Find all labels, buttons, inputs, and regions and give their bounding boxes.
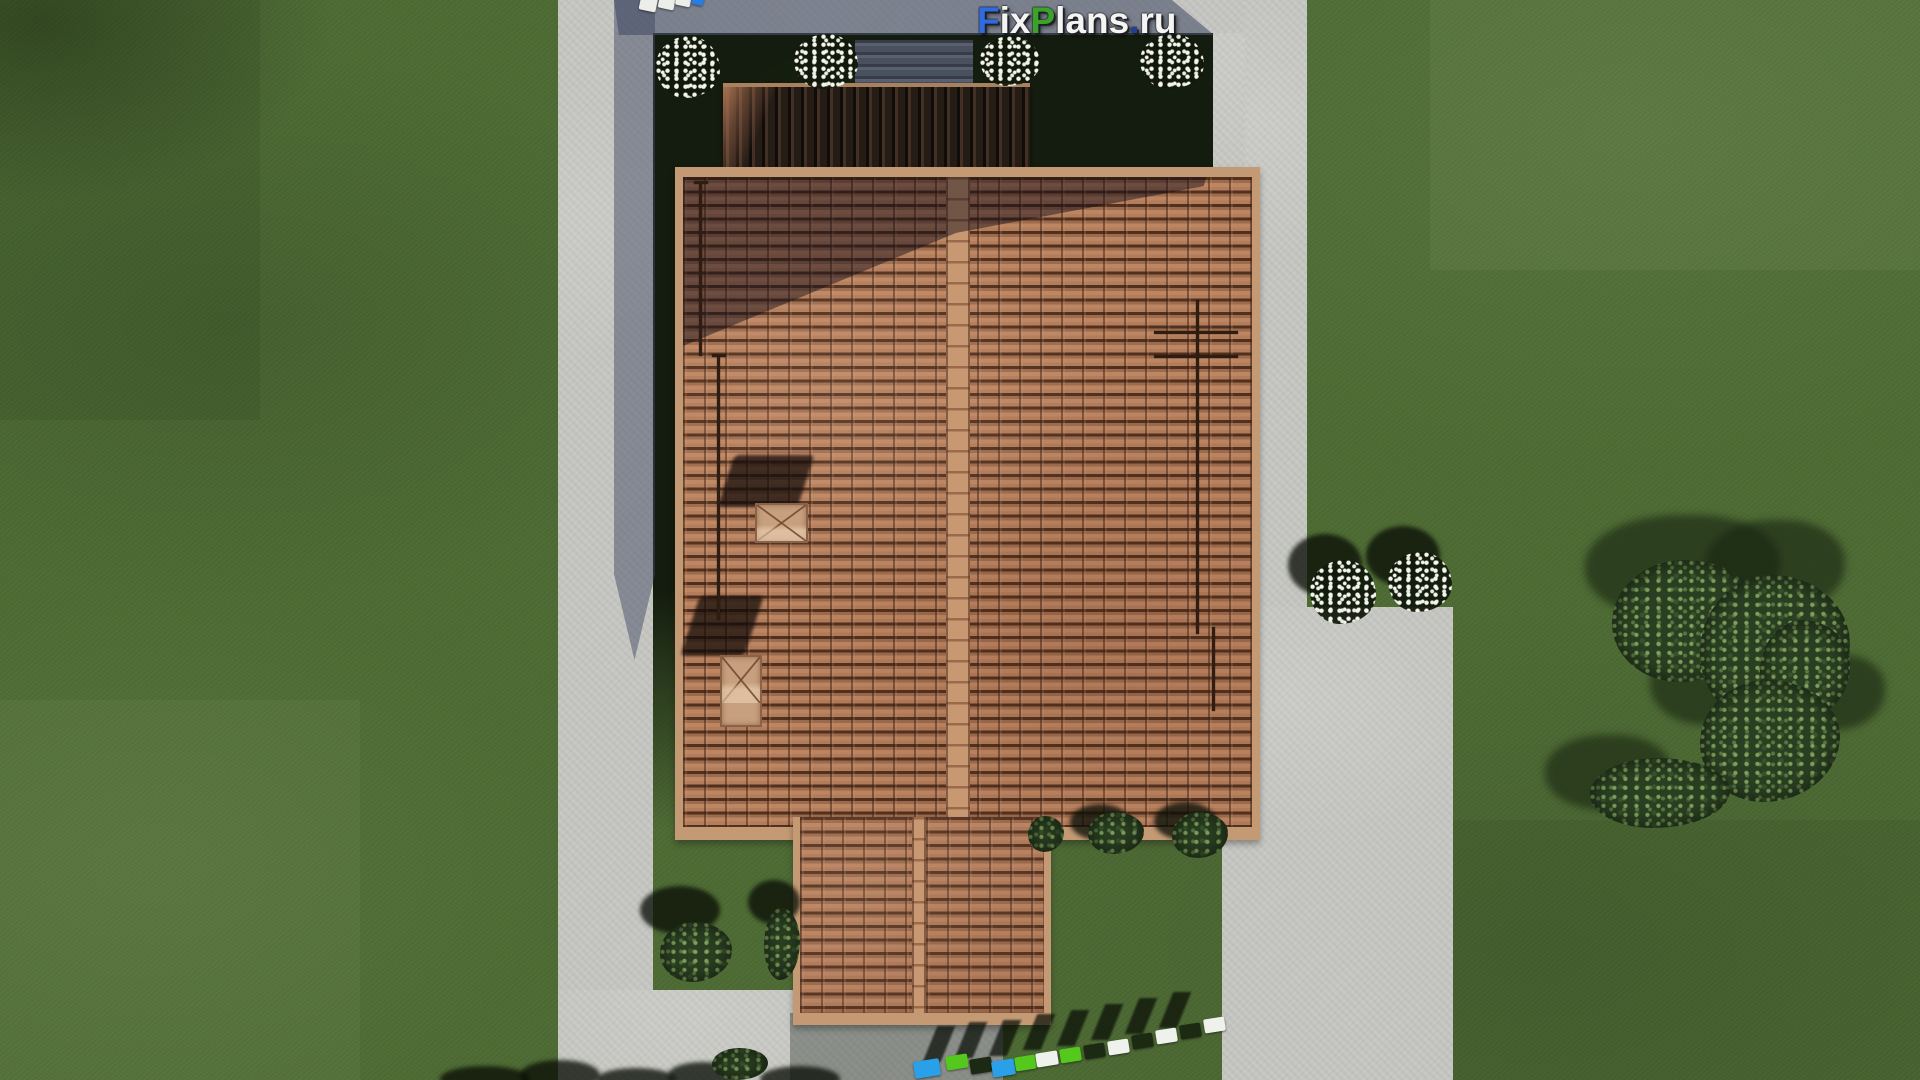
- watermark-segment: .: [1129, 0, 1139, 41]
- chimney: [755, 503, 808, 543]
- stone-shadow: [1159, 992, 1192, 1028]
- walkway-shadow: [614, 0, 655, 660]
- flower-shrub: [980, 36, 1040, 86]
- stone-shadow: [1057, 1010, 1090, 1046]
- green-shrub: [1172, 812, 1228, 858]
- tree-shadow: [440, 1066, 530, 1080]
- stepping-stone: [1083, 1042, 1106, 1059]
- stone-shadow: [1091, 1004, 1124, 1040]
- flower-shrub: [1388, 552, 1452, 612]
- snow-guard-rail: [1154, 331, 1238, 334]
- right-walkway-upper: [1213, 33, 1247, 169]
- stepping-stone: [1107, 1038, 1130, 1055]
- chimney: [720, 655, 762, 727]
- roof-rail: [1212, 627, 1215, 711]
- chimney-cap-seam: [722, 657, 760, 703]
- green-shrub: [660, 922, 732, 982]
- stepping-stone: [1035, 1050, 1059, 1067]
- stepping-stone: [1059, 1046, 1082, 1063]
- green-shrub: [1028, 816, 1064, 852]
- watermark-segment: lans: [1055, 0, 1129, 41]
- watermark-logo: FixPlans.ru: [977, 1, 1176, 41]
- watermark-segment: ru: [1139, 0, 1176, 41]
- roof-ridge: [946, 177, 970, 827]
- flower-shrub: [1140, 34, 1204, 89]
- green-shrub: [1088, 812, 1144, 854]
- watermark-segment: F: [977, 0, 1000, 41]
- roof-rail: [717, 356, 720, 620]
- stepping-stone: [1131, 1032, 1154, 1049]
- stepping-stone: [1014, 1054, 1037, 1071]
- extension-roof-ridge: [912, 817, 926, 1013]
- chimney-cap-seam: [757, 505, 806, 541]
- stone-shadow: [1125, 998, 1158, 1034]
- lawn-patch: [0, 0, 260, 420]
- tree: [1590, 758, 1730, 828]
- flower-shrub: [1310, 560, 1376, 624]
- stepping-stone: [991, 1058, 1016, 1077]
- lawn-patch: [1430, 0, 1920, 270]
- porch-roof: [723, 83, 1030, 172]
- flower-shrub: [656, 36, 720, 98]
- watermark-segment: ix: [1000, 0, 1031, 41]
- lawn-patch: [0, 700, 360, 1080]
- roof-rail: [699, 184, 702, 356]
- stepping-stone: [1155, 1027, 1178, 1044]
- roof-rail: [1196, 300, 1199, 634]
- watermark-segment: P: [1030, 0, 1055, 41]
- aerial-render-scene: FixPlans.ru: [0, 0, 1920, 1080]
- stepping-stone: [1179, 1022, 1202, 1039]
- extension-roof: [793, 817, 1051, 1025]
- flower-shrub: [794, 34, 858, 89]
- snow-guard-rail: [1154, 355, 1238, 358]
- terrace-deck: [855, 40, 973, 86]
- chimney-shadow: [718, 455, 815, 507]
